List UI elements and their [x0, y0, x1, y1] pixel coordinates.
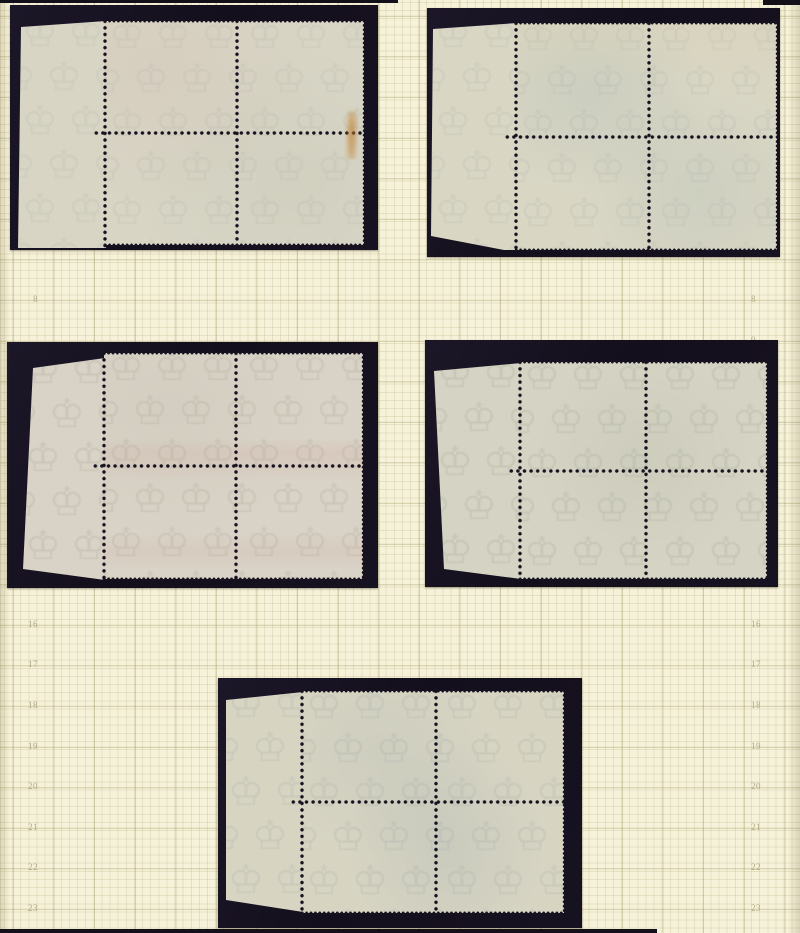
crown-watermark-icon: ♔: [338, 435, 363, 475]
album-page: 81617181920212223 891617181920212223 ♔♔♔…: [0, 0, 800, 933]
crown-watermark-icon: ♔: [352, 861, 388, 901]
crown-watermark-icon: ♔: [570, 362, 606, 396]
row-number-label: 16: [14, 619, 38, 629]
crown-watermark-icon: ♔: [46, 233, 82, 248]
row-number-label: 19: [14, 741, 38, 751]
crown-watermark-icon: ♔: [316, 479, 352, 519]
crown-watermark-icon: ♔: [18, 233, 36, 248]
crown-watermark-icon: ♔: [461, 398, 497, 438]
ink-showthrough: [516, 23, 777, 250]
crown-watermark-icon: ♔: [433, 574, 451, 580]
crown-watermark-icon: ♔: [225, 59, 261, 99]
crown-watermark-icon: ♔: [21, 570, 39, 580]
crown-watermark-icon: ♔: [25, 438, 61, 478]
crown-watermark-icon: ♔: [92, 233, 106, 248]
crown-watermark-icon: ♔: [317, 235, 353, 245]
block-of-four-stamps: ♔♔♔♔♔♔♔♔♔♔♔♔♔♔♔♔♔♔♔♔♔♔♔♔♔♔♔♔♔♔♔♔♔♔♔♔♔♔♔♔…: [302, 691, 564, 913]
crown-watermark-icon: ♔: [459, 58, 495, 98]
crown-watermark-icon: ♔: [728, 61, 764, 101]
watermark-layer: ♔♔♔♔♔♔♔♔♔♔♔♔♔♔♔♔♔♔♔♔♔: [431, 20, 517, 250]
crown-watermark-icon: ♔: [461, 486, 497, 526]
block-of-four-stamps: ♔♔♔♔♔♔♔♔♔♔♔♔♔♔♔♔♔♔♔♔♔♔♔♔♔♔♔♔♔♔♔♔♔♔♔♔♔♔♔♔…: [520, 362, 767, 579]
crown-watermark-icon: ♔: [200, 523, 236, 563]
crown-watermark-icon: ♔: [640, 488, 676, 528]
photo-edge-strip: [763, 0, 800, 5]
crown-watermark-icon: ♔: [109, 21, 145, 55]
crown-watermark-icon: ♔: [750, 193, 777, 233]
crown-watermark-icon: ♔: [133, 235, 169, 245]
crown-watermark-icon: ♔: [68, 189, 104, 229]
crown-watermark-icon: ♔: [708, 362, 744, 396]
crown-watermark-icon: ♔: [154, 435, 190, 475]
crown-watermark-icon: ♔: [481, 20, 517, 54]
row-number-label: 17: [14, 659, 38, 669]
crown-watermark-icon: ♔: [247, 21, 283, 55]
crown-watermark-icon: ♔: [536, 691, 564, 725]
crown-watermark-icon: ♔: [302, 817, 320, 857]
crown-watermark-icon: ♔: [71, 526, 105, 566]
crown-watermark-icon: ♔: [352, 773, 388, 813]
crown-watermark-icon: ♔: [201, 21, 237, 55]
crown-watermark-icon: ♔: [548, 488, 584, 528]
crown-watermark-icon: ♔: [483, 360, 519, 394]
crown-watermark-icon: ♔: [228, 690, 264, 724]
crown-watermark-icon: ♔: [544, 149, 580, 189]
crown-watermark-icon: ♔: [468, 817, 504, 857]
row-number-label: 17: [751, 659, 775, 669]
crown-watermark-icon: ♔: [658, 193, 694, 233]
crown-watermark-icon: ♔: [316, 391, 352, 431]
crown-watermark-icon: ♔: [483, 530, 519, 570]
crown-watermark-icon: ♔: [274, 690, 303, 724]
crown-watermark-icon: ♔: [682, 149, 718, 189]
crown-watermark-icon: ♔: [483, 442, 519, 482]
perforation-row: [234, 18, 240, 248]
crown-watermark-icon: ♔: [306, 773, 342, 813]
crown-watermark-icon: ♔: [155, 191, 191, 231]
crown-watermark-icon: ♔: [516, 237, 534, 250]
crown-watermark-icon: ♔: [566, 23, 602, 57]
crown-watermark-icon: ♔: [590, 237, 626, 250]
stamp-mount: ♔♔♔♔♔♔♔♔♔♔♔♔♔♔♔♔♔♔♔♔♔ ♔♔♔♔♔♔♔♔♔♔♔♔♔♔♔♔♔♔…: [10, 5, 378, 250]
crown-watermark-icon: ♔: [616, 444, 652, 484]
crown-watermark-icon: ♔: [520, 488, 538, 528]
crown-watermark-icon: ♔: [544, 237, 580, 250]
crown-watermark-icon: ♔: [109, 103, 145, 143]
crown-watermark-icon: ♔: [292, 353, 328, 387]
crown-watermark-icon: ♔: [21, 482, 39, 522]
row-number-label: 23: [751, 903, 775, 913]
crown-watermark-icon: ♔: [178, 567, 214, 579]
crown-watermark-icon: ♔: [109, 191, 145, 231]
crown-watermark-icon: ♔: [594, 400, 630, 440]
crown-watermark-icon: ♔: [774, 237, 777, 250]
crown-watermark-icon: ♔: [270, 567, 306, 579]
crown-watermark-icon: ♔: [362, 391, 363, 431]
block-of-four-stamps: ♔♔♔♔♔♔♔♔♔♔♔♔♔♔♔♔♔♔♔♔♔♔♔♔♔♔♔♔♔♔♔♔♔♔♔♔♔♔♔♔…: [516, 23, 777, 250]
crown-watermark-icon: ♔: [178, 479, 214, 519]
crown-watermark-icon: ♔: [520, 105, 556, 145]
crown-watermark-icon: ♔: [22, 189, 58, 229]
crown-watermark-icon: ♔: [224, 479, 260, 519]
crown-watermark-icon: ♔: [317, 59, 353, 99]
crown-watermark-icon: ♔: [516, 61, 534, 101]
crown-watermark-icon: ♔: [49, 394, 85, 434]
crown-watermark-icon: ♔: [293, 191, 329, 231]
crown-watermark-icon: ♔: [490, 773, 526, 813]
watermark-layer: ♔♔♔♔♔♔♔♔♔♔♔♔♔♔♔♔♔♔: [433, 360, 521, 580]
crown-watermark-icon: ♔: [636, 237, 672, 250]
crown-watermark-icon: ♔: [108, 435, 144, 475]
stamp-block-3: ♔♔♔♔♔♔♔♔♔♔♔♔♔♔♔♔♔♔ ♔♔♔♔♔♔♔♔♔♔♔♔♔♔♔♔♔♔♔♔♔…: [7, 342, 378, 588]
crown-watermark-icon: ♔: [444, 861, 480, 901]
watermark-layer: ♔♔♔♔♔♔♔♔♔♔♔♔♔♔♔♔♔♔♔♔♔♔♔♔♔♔♔♔♔♔♔♔♔♔♔♔♔♔♔♔…: [104, 353, 363, 579]
crown-watermark-icon: ♔: [662, 444, 698, 484]
crown-watermark-icon: ♔: [292, 435, 328, 475]
crown-watermark-icon: ♔: [444, 773, 480, 813]
crown-watermark-icon: ♔: [338, 353, 363, 387]
crown-watermark-icon: ♔: [154, 523, 190, 563]
stamp-mount: ♔♔♔♔♔♔♔♔♔♔♔♔♔♔♔♔♔♔ ♔♔♔♔♔♔♔♔♔♔♔♔♔♔♔♔♔♔♔♔♔…: [7, 342, 378, 588]
crown-watermark-icon: ♔: [728, 237, 764, 250]
crown-watermark-icon: ♔: [507, 574, 521, 580]
crown-watermark-icon: ♔: [316, 567, 352, 579]
crown-watermark-icon: ♔: [71, 438, 105, 478]
crown-watermark-icon: ♔: [154, 353, 190, 387]
crown-watermark-icon: ♔: [616, 532, 652, 572]
perforated-edge: [103, 243, 366, 247]
crown-watermark-icon: ♔: [708, 532, 744, 572]
perforation-row: [290, 799, 566, 805]
crown-watermark-icon: ♔: [662, 362, 698, 396]
crown-watermark-icon: ♔: [516, 149, 534, 189]
crown-watermark-icon: ♔: [507, 486, 521, 526]
perforation-row: [504, 134, 779, 140]
row-number-label: 21: [751, 822, 775, 832]
crown-watermark-icon: ♔: [520, 23, 556, 57]
crown-watermark-icon: ♔: [302, 905, 320, 913]
crown-watermark-icon: ♔: [524, 362, 560, 396]
photo-edge-strip: [0, 0, 398, 3]
perforated-edge: [514, 21, 779, 25]
watermark-layer: ♔♔♔♔♔♔♔♔♔♔♔♔♔♔♔♔♔♔♔♔♔♔♔♔♔♔♔♔♔♔♔♔♔♔♔♔♔♔♔♔…: [520, 362, 767, 579]
crown-watermark-icon: ♔: [18, 57, 36, 97]
crown-watermark-icon: ♔: [274, 772, 303, 812]
crown-watermark-icon: ♔: [750, 23, 777, 57]
crown-watermark-icon: ♔: [108, 353, 144, 387]
crown-watermark-icon: ♔: [155, 103, 191, 143]
crown-watermark-icon: ♔: [224, 816, 242, 856]
crown-watermark-icon: ♔: [25, 356, 61, 390]
crown-watermark-icon: ♔: [338, 523, 363, 563]
crown-watermark-icon: ♔: [468, 905, 504, 913]
crown-watermark-icon: ♔: [433, 398, 451, 438]
perforated-edge: [514, 248, 779, 252]
perforated-edge: [765, 360, 769, 581]
perforated-edge: [300, 911, 566, 915]
crown-watermark-icon: ♔: [431, 234, 449, 250]
crown-watermark-icon: ♔: [732, 576, 767, 579]
crown-watermark-icon: ♔: [252, 728, 288, 768]
crown-watermark-icon: ♔: [270, 479, 306, 519]
crown-watermark-icon: ♔: [271, 235, 307, 245]
crown-watermark-icon: ♔: [92, 57, 106, 97]
crown-watermark-icon: ♔: [104, 391, 122, 431]
crown-watermark-icon: ♔: [566, 105, 602, 145]
crown-watermark-icon: ♔: [108, 523, 144, 563]
crown-watermark-icon: ♔: [224, 728, 242, 768]
crown-watermark-icon: ♔: [362, 479, 363, 519]
selvedge-margin: ♔♔♔♔♔♔♔♔♔♔♔♔♔♔♔♔♔♔: [224, 690, 303, 913]
crown-watermark-icon: ♔: [132, 479, 168, 519]
crown-watermark-icon: ♔: [422, 817, 458, 857]
selvedge-margin: ♔♔♔♔♔♔♔♔♔♔♔♔♔♔♔♔♔♔: [21, 356, 105, 580]
crown-watermark-icon: ♔: [481, 190, 517, 230]
photo-edge-strip: [0, 929, 657, 933]
crown-watermark-icon: ♔: [68, 101, 104, 141]
crown-watermark-icon: ♔: [339, 103, 364, 143]
crown-watermark-icon: ♔: [225, 235, 261, 245]
crown-watermark-icon: ♔: [560, 729, 564, 769]
crown-watermark-icon: ♔: [92, 145, 106, 185]
crown-watermark-icon: ♔: [636, 61, 672, 101]
crown-watermark-icon: ♔: [616, 362, 652, 396]
crown-watermark-icon: ♔: [271, 147, 307, 187]
crown-watermark-icon: ♔: [544, 61, 580, 101]
crown-watermark-icon: ♔: [560, 817, 564, 857]
row-number-label: 23: [14, 903, 38, 913]
crown-watermark-icon: ♔: [49, 570, 85, 580]
crown-watermark-icon: ♔: [363, 147, 364, 187]
crown-watermark-icon: ♔: [612, 105, 648, 145]
row-number-label: 16: [751, 619, 775, 629]
crown-watermark-icon: ♔: [594, 488, 630, 528]
toning-stain-spot: [345, 111, 359, 159]
crown-watermark-icon: ♔: [658, 105, 694, 145]
crown-watermark-icon: ♔: [46, 57, 82, 97]
perforation-row: [92, 463, 365, 469]
crown-watermark-icon: ♔: [246, 353, 282, 387]
crown-watermark-icon: ♔: [200, 353, 236, 387]
crown-watermark-icon: ♔: [133, 147, 169, 187]
crown-watermark-icon: ♔: [437, 360, 473, 394]
block-of-four-stamps: ♔♔♔♔♔♔♔♔♔♔♔♔♔♔♔♔♔♔♔♔♔♔♔♔♔♔♔♔♔♔♔♔♔♔♔♔♔♔♔♔…: [105, 21, 364, 245]
crown-watermark-icon: ♔: [46, 145, 82, 185]
perforation-row: [433, 688, 439, 916]
crown-watermark-icon: ♔: [49, 482, 85, 522]
crown-watermark-icon: ♔: [201, 103, 237, 143]
ink-showthrough: [105, 21, 364, 245]
stamp-block-4: ♔♔♔♔♔♔♔♔♔♔♔♔♔♔♔♔♔♔ ♔♔♔♔♔♔♔♔♔♔♔♔♔♔♔♔♔♔♔♔♔…: [425, 340, 778, 587]
watermark-layer: ♔♔♔♔♔♔♔♔♔♔♔♔♔♔♔♔♔♔♔♔♔♔♔♔♔♔♔♔♔♔♔♔♔♔♔♔♔♔♔♔…: [302, 691, 564, 913]
crown-watermark-icon: ♔: [246, 523, 282, 563]
crown-watermark-icon: ♔: [570, 532, 606, 572]
perforated-edge: [362, 19, 366, 247]
crown-watermark-icon: ♔: [105, 59, 123, 99]
crown-watermark-icon: ♔: [514, 905, 550, 913]
crown-watermark-icon: ♔: [560, 905, 564, 913]
crown-watermark-icon: ♔: [247, 103, 283, 143]
row-number-label: 8: [14, 294, 38, 304]
stamp-block-1: ♔♔♔♔♔♔♔♔♔♔♔♔♔♔♔♔♔♔♔♔♔ ♔♔♔♔♔♔♔♔♔♔♔♔♔♔♔♔♔♔…: [10, 5, 378, 250]
stamp-mount: ♔♔♔♔♔♔♔♔♔♔♔♔♔♔♔♔♔♔ ♔♔♔♔♔♔♔♔♔♔♔♔♔♔♔♔♔♔♔♔♔…: [425, 340, 778, 587]
crown-watermark-icon: ♔: [536, 861, 564, 901]
crown-watermark-icon: ♔: [459, 234, 495, 250]
crown-watermark-icon: ♔: [612, 193, 648, 233]
crown-watermark-icon: ♔: [247, 191, 283, 231]
crown-watermark-icon: ♔: [490, 691, 526, 725]
crown-watermark-icon: ♔: [363, 235, 364, 245]
crown-watermark-icon: ♔: [224, 567, 260, 579]
crown-watermark-icon: ♔: [104, 479, 122, 519]
crown-watermark-icon: ♔: [306, 861, 342, 901]
crown-watermark-icon: ♔: [590, 149, 626, 189]
ink-showthrough: [302, 691, 564, 913]
crown-watermark-icon: ♔: [686, 488, 722, 528]
crown-watermark-icon: ♔: [330, 905, 366, 913]
crown-watermark-icon: ♔: [433, 486, 451, 526]
crown-watermark-icon: ♔: [520, 193, 556, 233]
crown-watermark-icon: ♔: [330, 729, 366, 769]
crown-watermark-icon: ♔: [640, 400, 676, 440]
crown-watermark-icon: ♔: [21, 394, 39, 434]
perforated-edge: [518, 360, 769, 364]
crown-watermark-icon: ♔: [524, 532, 560, 572]
crown-watermark-icon: ♔: [376, 905, 412, 913]
crown-watermark-icon: ♔: [536, 773, 564, 813]
crown-watermark-icon: ♔: [132, 391, 168, 431]
selvedge-margin: ♔♔♔♔♔♔♔♔♔♔♔♔♔♔♔♔♔♔♔♔♔: [18, 19, 106, 248]
crown-watermark-icon: ♔: [658, 23, 694, 57]
stamp-block-5: ♔♔♔♔♔♔♔♔♔♔♔♔♔♔♔♔♔♔ ♔♔♔♔♔♔♔♔♔♔♔♔♔♔♔♔♔♔♔♔♔…: [218, 678, 582, 928]
perforation-row: [646, 20, 652, 253]
crown-watermark-icon: ♔: [682, 237, 718, 250]
crown-watermark-icon: ♔: [271, 59, 307, 99]
ink-showthrough: [104, 353, 363, 579]
crown-watermark-icon: ♔: [363, 59, 364, 99]
ink-showthrough: [520, 362, 767, 579]
crown-watermark-icon: ♔: [398, 861, 434, 901]
crown-watermark-icon: ♔: [302, 729, 320, 769]
crown-watermark-icon: ♔: [105, 235, 123, 245]
crown-watermark-icon: ♔: [292, 523, 328, 563]
crown-watermark-icon: ♔: [520, 576, 538, 579]
crown-watermark-icon: ♔: [18, 145, 36, 185]
crown-watermark-icon: ♔: [224, 904, 242, 913]
crown-watermark-icon: ♔: [155, 21, 191, 55]
crown-watermark-icon: ♔: [704, 23, 740, 57]
perforated-edge: [775, 21, 779, 252]
crown-watermark-icon: ♔: [376, 817, 412, 857]
crown-watermark-icon: ♔: [640, 576, 676, 579]
crown-watermark-icon: ♔: [293, 21, 329, 55]
crown-watermark-icon: ♔: [437, 442, 473, 482]
row-number-label: 20: [751, 781, 775, 791]
perforated-edge: [562, 689, 566, 915]
crown-watermark-icon: ♔: [570, 444, 606, 484]
selvedge-margin: ♔♔♔♔♔♔♔♔♔♔♔♔♔♔♔♔♔♔♔♔♔: [431, 20, 517, 250]
perforated-edge: [102, 351, 365, 355]
crown-watermark-icon: ♔: [686, 576, 722, 579]
crown-watermark-icon: ♔: [754, 532, 767, 572]
crown-watermark-icon: ♔: [754, 362, 767, 396]
crown-watermark-icon: ♔: [774, 61, 777, 101]
crown-watermark-icon: ♔: [754, 444, 767, 484]
perforated-edge: [102, 577, 365, 581]
crown-watermark-icon: ♔: [490, 861, 526, 901]
crown-watermark-icon: ♔: [548, 576, 584, 579]
crown-watermark-icon: ♔: [398, 691, 434, 725]
stamp-mount: ♔♔♔♔♔♔♔♔♔♔♔♔♔♔♔♔♔♔♔♔♔ ♔♔♔♔♔♔♔♔♔♔♔♔♔♔♔♔♔♔…: [427, 8, 780, 257]
crown-watermark-icon: ♔: [774, 149, 777, 189]
crown-watermark-icon: ♔: [252, 816, 288, 856]
crown-watermark-icon: ♔: [274, 860, 303, 900]
perforation-row: [233, 350, 239, 582]
crown-watermark-icon: ♔: [25, 526, 61, 566]
crown-watermark-icon: ♔: [566, 193, 602, 233]
stamp-block-2: ♔♔♔♔♔♔♔♔♔♔♔♔♔♔♔♔♔♔♔♔♔ ♔♔♔♔♔♔♔♔♔♔♔♔♔♔♔♔♔♔…: [427, 8, 780, 257]
crown-watermark-icon: ♔: [704, 105, 740, 145]
crown-watermark-icon: ♔: [68, 19, 104, 53]
watermark-layer: ♔♔♔♔♔♔♔♔♔♔♔♔♔♔♔♔♔♔♔♔♔♔♔♔♔♔♔♔♔♔♔♔♔♔♔♔♔♔♔♔…: [105, 21, 364, 245]
crown-watermark-icon: ♔: [612, 23, 648, 57]
crown-watermark-icon: ♔: [252, 904, 288, 913]
crown-watermark-icon: ♔: [22, 19, 58, 53]
crown-watermark-icon: ♔: [514, 817, 550, 857]
crown-watermark-icon: ♔: [228, 772, 264, 812]
crown-watermark-icon: ♔: [71, 356, 105, 390]
crown-watermark-icon: ♔: [461, 574, 497, 580]
crown-watermark-icon: ♔: [686, 400, 722, 440]
row-number-label: 8: [751, 294, 775, 304]
row-number-label: 18: [751, 700, 775, 710]
row-number-label: 19: [751, 741, 775, 751]
perforation-row: [643, 359, 649, 582]
crown-watermark-icon: ♔: [437, 530, 473, 570]
crown-watermark-icon: ♔: [459, 146, 495, 186]
crown-watermark-icon: ♔: [330, 817, 366, 857]
perforation-row: [508, 468, 769, 474]
crown-watermark-icon: ♔: [750, 105, 777, 145]
selvedge-margin: ♔♔♔♔♔♔♔♔♔♔♔♔♔♔♔♔♔♔: [433, 360, 521, 580]
crown-watermark-icon: ♔: [507, 398, 521, 438]
crown-watermark-icon: ♔: [201, 191, 237, 231]
watermark-layer: ♔♔♔♔♔♔♔♔♔♔♔♔♔♔♔♔♔♔: [21, 356, 105, 580]
crown-watermark-icon: ♔: [225, 147, 261, 187]
crown-watermark-icon: ♔: [514, 729, 550, 769]
crown-watermark-icon: ♔: [422, 729, 458, 769]
crown-watermark-icon: ♔: [732, 488, 767, 528]
watermark-layer: ♔♔♔♔♔♔♔♔♔♔♔♔♔♔♔♔♔♔: [224, 690, 303, 913]
row-number-label: 22: [751, 862, 775, 872]
crown-watermark-icon: ♔: [228, 860, 264, 900]
crown-watermark-icon: ♔: [270, 391, 306, 431]
crown-watermark-icon: ♔: [435, 190, 471, 230]
row-number-label: 20: [14, 781, 38, 791]
crown-watermark-icon: ♔: [22, 101, 58, 141]
stamp-mount: ♔♔♔♔♔♔♔♔♔♔♔♔♔♔♔♔♔♔ ♔♔♔♔♔♔♔♔♔♔♔♔♔♔♔♔♔♔♔♔♔…: [218, 678, 582, 928]
crown-watermark-icon: ♔: [246, 435, 282, 475]
crown-watermark-icon: ♔: [352, 691, 388, 725]
row-number-label: 22: [14, 862, 38, 872]
row-number-label: 18: [14, 700, 38, 710]
crown-watermark-icon: ♔: [590, 61, 626, 101]
perforated-edge: [361, 351, 365, 581]
crown-watermark-icon: ♔: [662, 532, 698, 572]
crown-watermark-icon: ♔: [422, 905, 458, 913]
crown-watermark-icon: ♔: [728, 149, 764, 189]
crown-watermark-icon: ♔: [178, 391, 214, 431]
